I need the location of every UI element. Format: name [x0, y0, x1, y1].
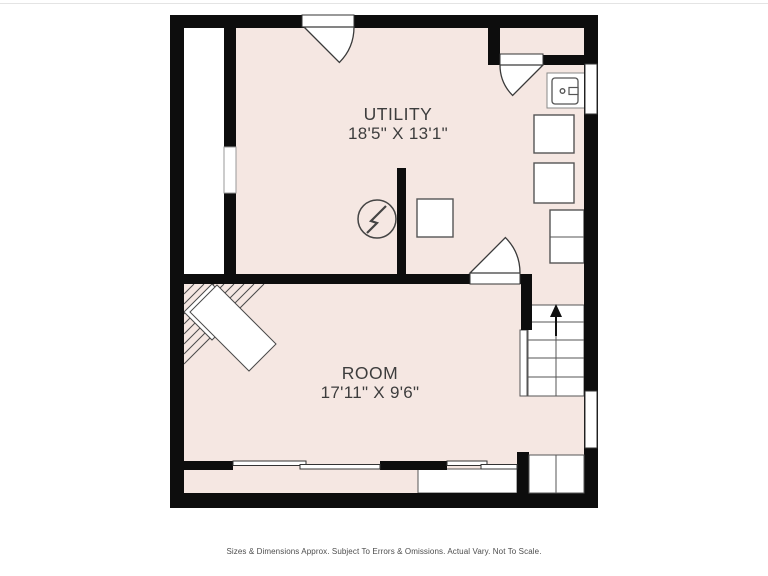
door-threshold-top — [302, 15, 354, 27]
side-corridor — [184, 25, 224, 276]
wall-corridor-lower — [224, 193, 236, 274]
floor-plan-drawing: UTILITY 18'5" X 13'1" ROOM 17'11" X 9'6" — [0, 0, 768, 576]
wall-corridor-upper — [224, 25, 236, 147]
door-threshold-room — [470, 273, 520, 284]
wall-room-south-mid — [380, 461, 447, 470]
faucet-icon — [569, 88, 578, 95]
appliance-square — [534, 163, 574, 203]
room-label-utility: UTILITY — [364, 104, 433, 124]
floor-plan-page: UTILITY 18'5" X 13'1" ROOM 17'11" X 9'6"… — [0, 0, 768, 576]
window-right-upper — [585, 64, 597, 114]
wall-left — [170, 15, 184, 508]
wall-bottom-stub — [517, 452, 529, 493]
wall-stairwell — [521, 274, 532, 330]
floor-area — [184, 25, 584, 493]
room-dims-utility: 18'5" X 13'1" — [348, 124, 448, 143]
bottom-right-cabinet — [529, 455, 584, 493]
sink-drain-icon — [560, 89, 565, 94]
appliance-square — [534, 115, 574, 153]
appliance-square — [417, 199, 453, 237]
wall-room-south-left — [184, 461, 233, 470]
window-right-lower — [585, 391, 597, 448]
wall-utility-stub — [397, 168, 406, 274]
door-threshold-closet — [500, 54, 543, 65]
electrical-panel-symbol — [358, 200, 396, 238]
disclaimer-text: Sizes & Dimensions Approx. Subject To Er… — [0, 547, 768, 556]
room-label-room: ROOM — [342, 363, 398, 383]
window-corridor — [224, 147, 236, 193]
stair-railing — [520, 330, 527, 396]
cabinet-stack — [550, 210, 584, 263]
sink-unit — [547, 73, 585, 108]
wall-bottom — [170, 493, 598, 508]
room-dims-room: 17'11" X 9'6" — [321, 383, 420, 402]
bay-recess — [418, 469, 517, 493]
wall-closet-stub — [488, 25, 500, 55]
